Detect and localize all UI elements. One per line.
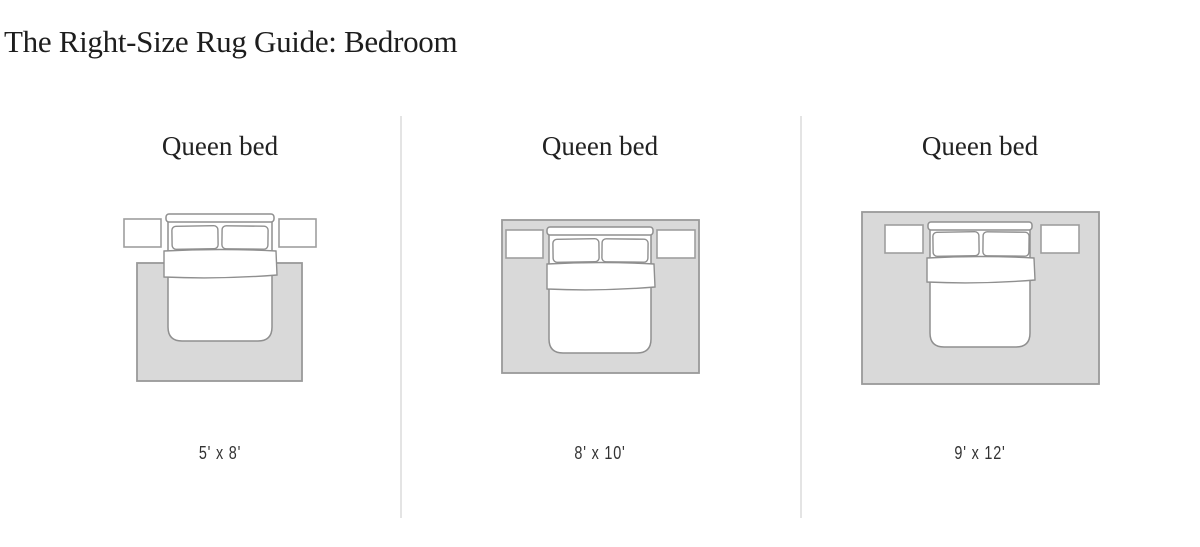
blanket-shape (547, 263, 655, 290)
nightstand-right-shape (657, 230, 695, 258)
rug-guide-panel-5x8: Queen bed 5' x 8' (0, 0, 400, 547)
nightstand-right-shape (279, 219, 316, 247)
pillow-left-shape (933, 232, 979, 257)
nightstand-left-shape (885, 225, 923, 253)
blanket-shape (927, 257, 1035, 283)
nightstand-left-shape (506, 230, 543, 258)
bed-type-heading: Queen bed (70, 131, 370, 162)
headboard-shape (547, 227, 653, 235)
blanket-shape (164, 250, 277, 278)
bedroom-layout-diagram (400, 205, 800, 390)
bedroom-layout-diagram (800, 205, 1200, 390)
pillow-right-shape (983, 232, 1029, 257)
pillow-left-shape (172, 226, 218, 250)
rug-size-label: 5' x 8' (100, 443, 340, 464)
pillow-right-shape (222, 226, 268, 250)
bed-type-heading: Queen bed (450, 131, 750, 162)
pillow-left-shape (553, 239, 599, 263)
nightstand-right-shape (1041, 225, 1079, 253)
nightstand-left-shape (124, 219, 161, 247)
rug-size-label: 9' x 12' (860, 443, 1100, 464)
bed-type-heading: Queen bed (830, 131, 1130, 162)
rug-guide-panel-8x10: Queen bed 8' x 10' (400, 0, 800, 547)
rug-guide-panel-9x12: Queen bed 9' x 12' (800, 0, 1200, 547)
rug-size-label: 8' x 10' (480, 443, 720, 464)
bedroom-layout-diagram (0, 205, 400, 390)
headboard-shape (928, 222, 1032, 230)
headboard-shape (166, 214, 274, 222)
pillow-right-shape (602, 239, 648, 263)
